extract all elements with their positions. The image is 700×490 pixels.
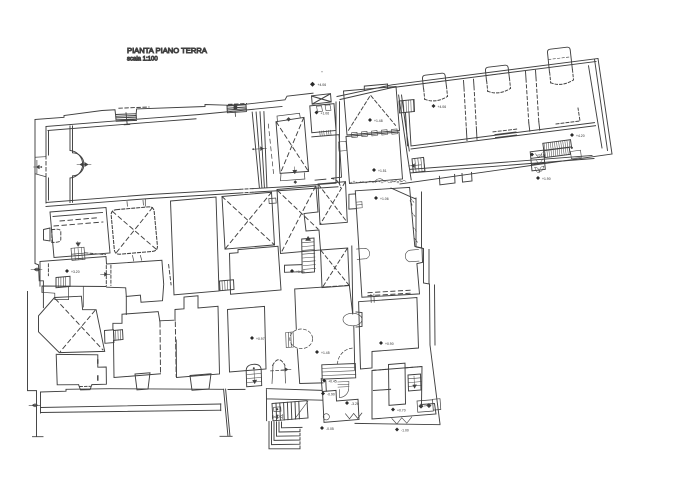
svg-text:-0.90: -0.90 [327, 393, 335, 397]
svg-text:-0.05: -0.05 [326, 427, 334, 431]
svg-text:+1.51: +1.51 [378, 169, 387, 173]
svg-text:+0.70: +0.70 [397, 409, 406, 413]
svg-text:+1.90: +1.90 [542, 177, 551, 181]
svg-text:+0.97: +0.97 [256, 337, 265, 341]
svg-text:+1.06: +1.06 [380, 197, 389, 201]
svg-text:-3.20: -3.20 [351, 402, 359, 406]
svg-text:scala 1:100: scala 1:100 [127, 57, 158, 63]
svg-text:+3.20: +3.20 [71, 270, 80, 274]
svg-text:+2.10: +2.10 [536, 154, 545, 158]
svg-text:+0.45: +0.45 [328, 380, 337, 384]
svg-text:-1.00: -1.00 [401, 429, 409, 433]
svg-text:+1.48: +1.48 [374, 119, 383, 123]
svg-text:+0.90: +0.90 [385, 342, 394, 346]
svg-text:+4.20: +4.20 [576, 134, 585, 138]
svg-text:+4.06: +4.06 [318, 83, 327, 87]
svg-text:+4.06: +4.06 [438, 105, 447, 109]
svg-text:PIANTA PIANO TERRA: PIANTA PIANO TERRA [127, 46, 208, 55]
svg-text:+1.45: +1.45 [321, 351, 330, 355]
svg-text:+1.06: +1.06 [321, 112, 330, 116]
svg-text:+1.26: +1.26 [296, 270, 305, 274]
